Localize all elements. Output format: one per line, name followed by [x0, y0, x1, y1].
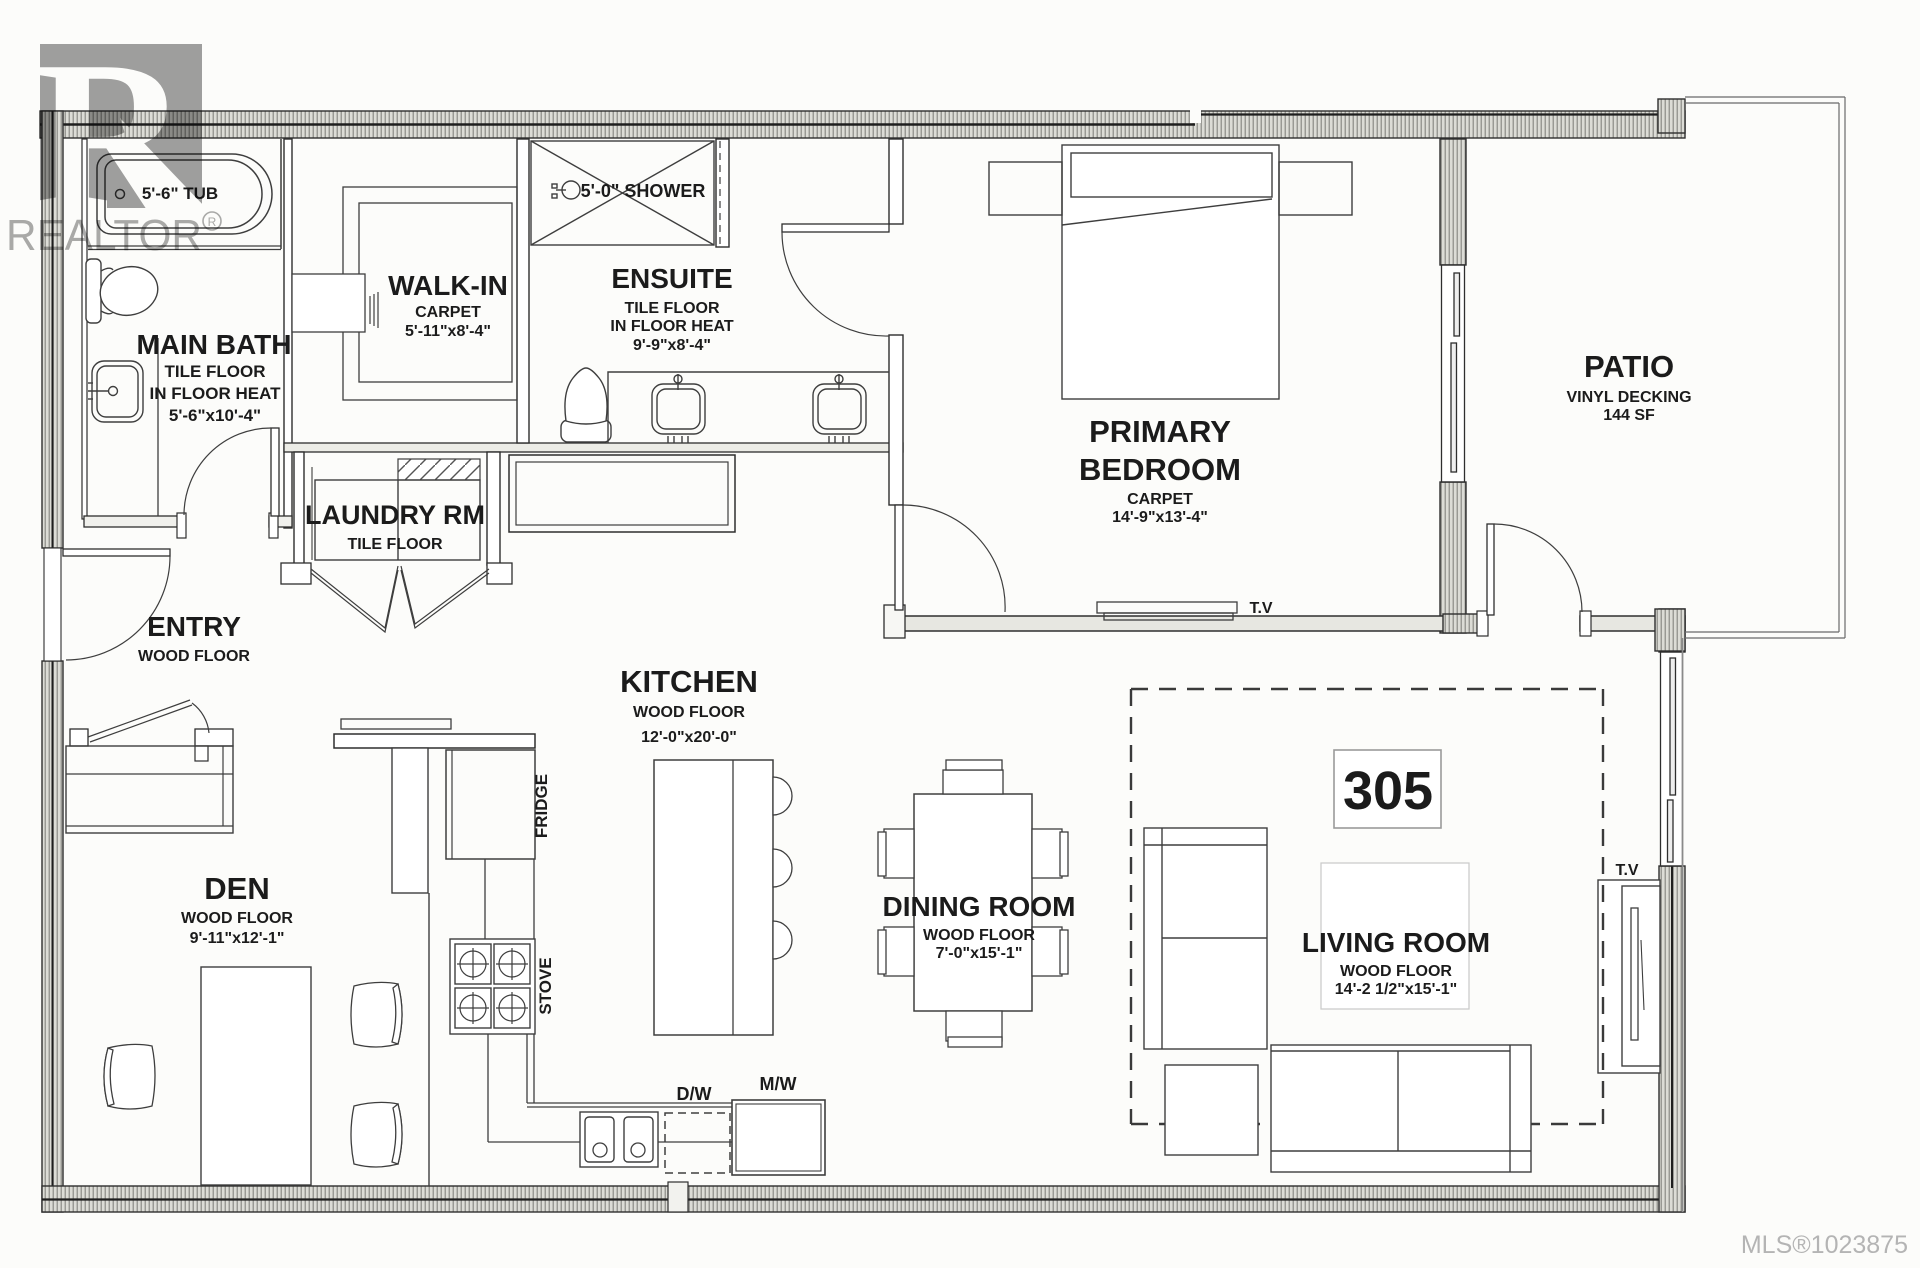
svg-text:T.V: T.V [1615, 862, 1638, 879]
svg-text:BEDROOM: BEDROOM [1079, 452, 1241, 487]
svg-text:MLS®1023875: MLS®1023875 [1741, 1231, 1908, 1259]
svg-text:5'-6"x10'-4": 5'-6"x10'-4" [169, 406, 261, 425]
svg-text:MAIN BATH: MAIN BATH [136, 329, 291, 360]
svg-text:9'-9"x8'-4": 9'-9"x8'-4" [633, 337, 711, 354]
svg-text:5'-0" SHOWER: 5'-0" SHOWER [581, 181, 706, 201]
svg-text:305: 305 [1343, 761, 1433, 821]
svg-text:DINING ROOM: DINING ROOM [883, 891, 1076, 922]
svg-text:REALTOR: REALTOR [6, 211, 202, 260]
svg-text:TILE FLOOR: TILE FLOOR [624, 300, 720, 317]
svg-text:KITCHEN: KITCHEN [620, 664, 758, 699]
svg-text:DEN: DEN [204, 871, 269, 906]
svg-text:WALK-IN: WALK-IN [388, 270, 508, 301]
svg-text:PRIMARY: PRIMARY [1089, 414, 1231, 449]
svg-text:R: R [208, 215, 217, 229]
svg-text:TILE FLOOR: TILE FLOOR [347, 536, 443, 553]
svg-text:WOOD FLOOR: WOOD FLOOR [1340, 963, 1452, 980]
svg-text:14'-2 1/2"x15'-1": 14'-2 1/2"x15'-1" [1335, 981, 1457, 998]
svg-text:WOOD FLOOR: WOOD FLOOR [138, 648, 250, 665]
svg-text:WOOD FLOOR: WOOD FLOOR [633, 704, 745, 721]
svg-text:WOOD FLOOR: WOOD FLOOR [181, 910, 293, 927]
svg-text:LIVING ROOM: LIVING ROOM [1302, 927, 1490, 958]
svg-text:PATIO: PATIO [1584, 349, 1674, 384]
svg-text:VINYL DECKING: VINYL DECKING [1566, 389, 1691, 406]
svg-text:IN FLOOR HEAT: IN FLOOR HEAT [610, 318, 733, 335]
svg-text:TILE FLOOR: TILE FLOOR [164, 362, 265, 381]
svg-text:ENSUITE: ENSUITE [611, 263, 732, 294]
svg-text:ENTRY: ENTRY [147, 611, 241, 642]
svg-text:7'-0"x15'-1": 7'-0"x15'-1" [936, 945, 1023, 962]
svg-text:IN FLOOR HEAT: IN FLOOR HEAT [150, 384, 282, 403]
svg-text:LAUNDRY RM: LAUNDRY RM [305, 500, 485, 530]
svg-text:12'-0"x20'-0": 12'-0"x20'-0" [641, 729, 737, 746]
svg-text:9'-11"x12'-1": 9'-11"x12'-1" [190, 930, 285, 947]
svg-text:CARPET: CARPET [415, 304, 481, 321]
svg-text:M/W: M/W [760, 1074, 797, 1094]
svg-text:STOVE: STOVE [536, 957, 555, 1014]
svg-text:FRIDGE: FRIDGE [532, 774, 551, 838]
svg-text:CARPET: CARPET [1127, 491, 1193, 508]
svg-text:5'-11"x8'-4": 5'-11"x8'-4" [405, 323, 491, 340]
svg-text:14'-9"x13'-4": 14'-9"x13'-4" [1112, 509, 1208, 526]
svg-text:D/W: D/W [677, 1084, 712, 1104]
svg-text:T.V: T.V [1249, 600, 1272, 617]
svg-text:144 SF: 144 SF [1603, 407, 1655, 424]
svg-text:WOOD FLOOR: WOOD FLOOR [923, 927, 1035, 944]
